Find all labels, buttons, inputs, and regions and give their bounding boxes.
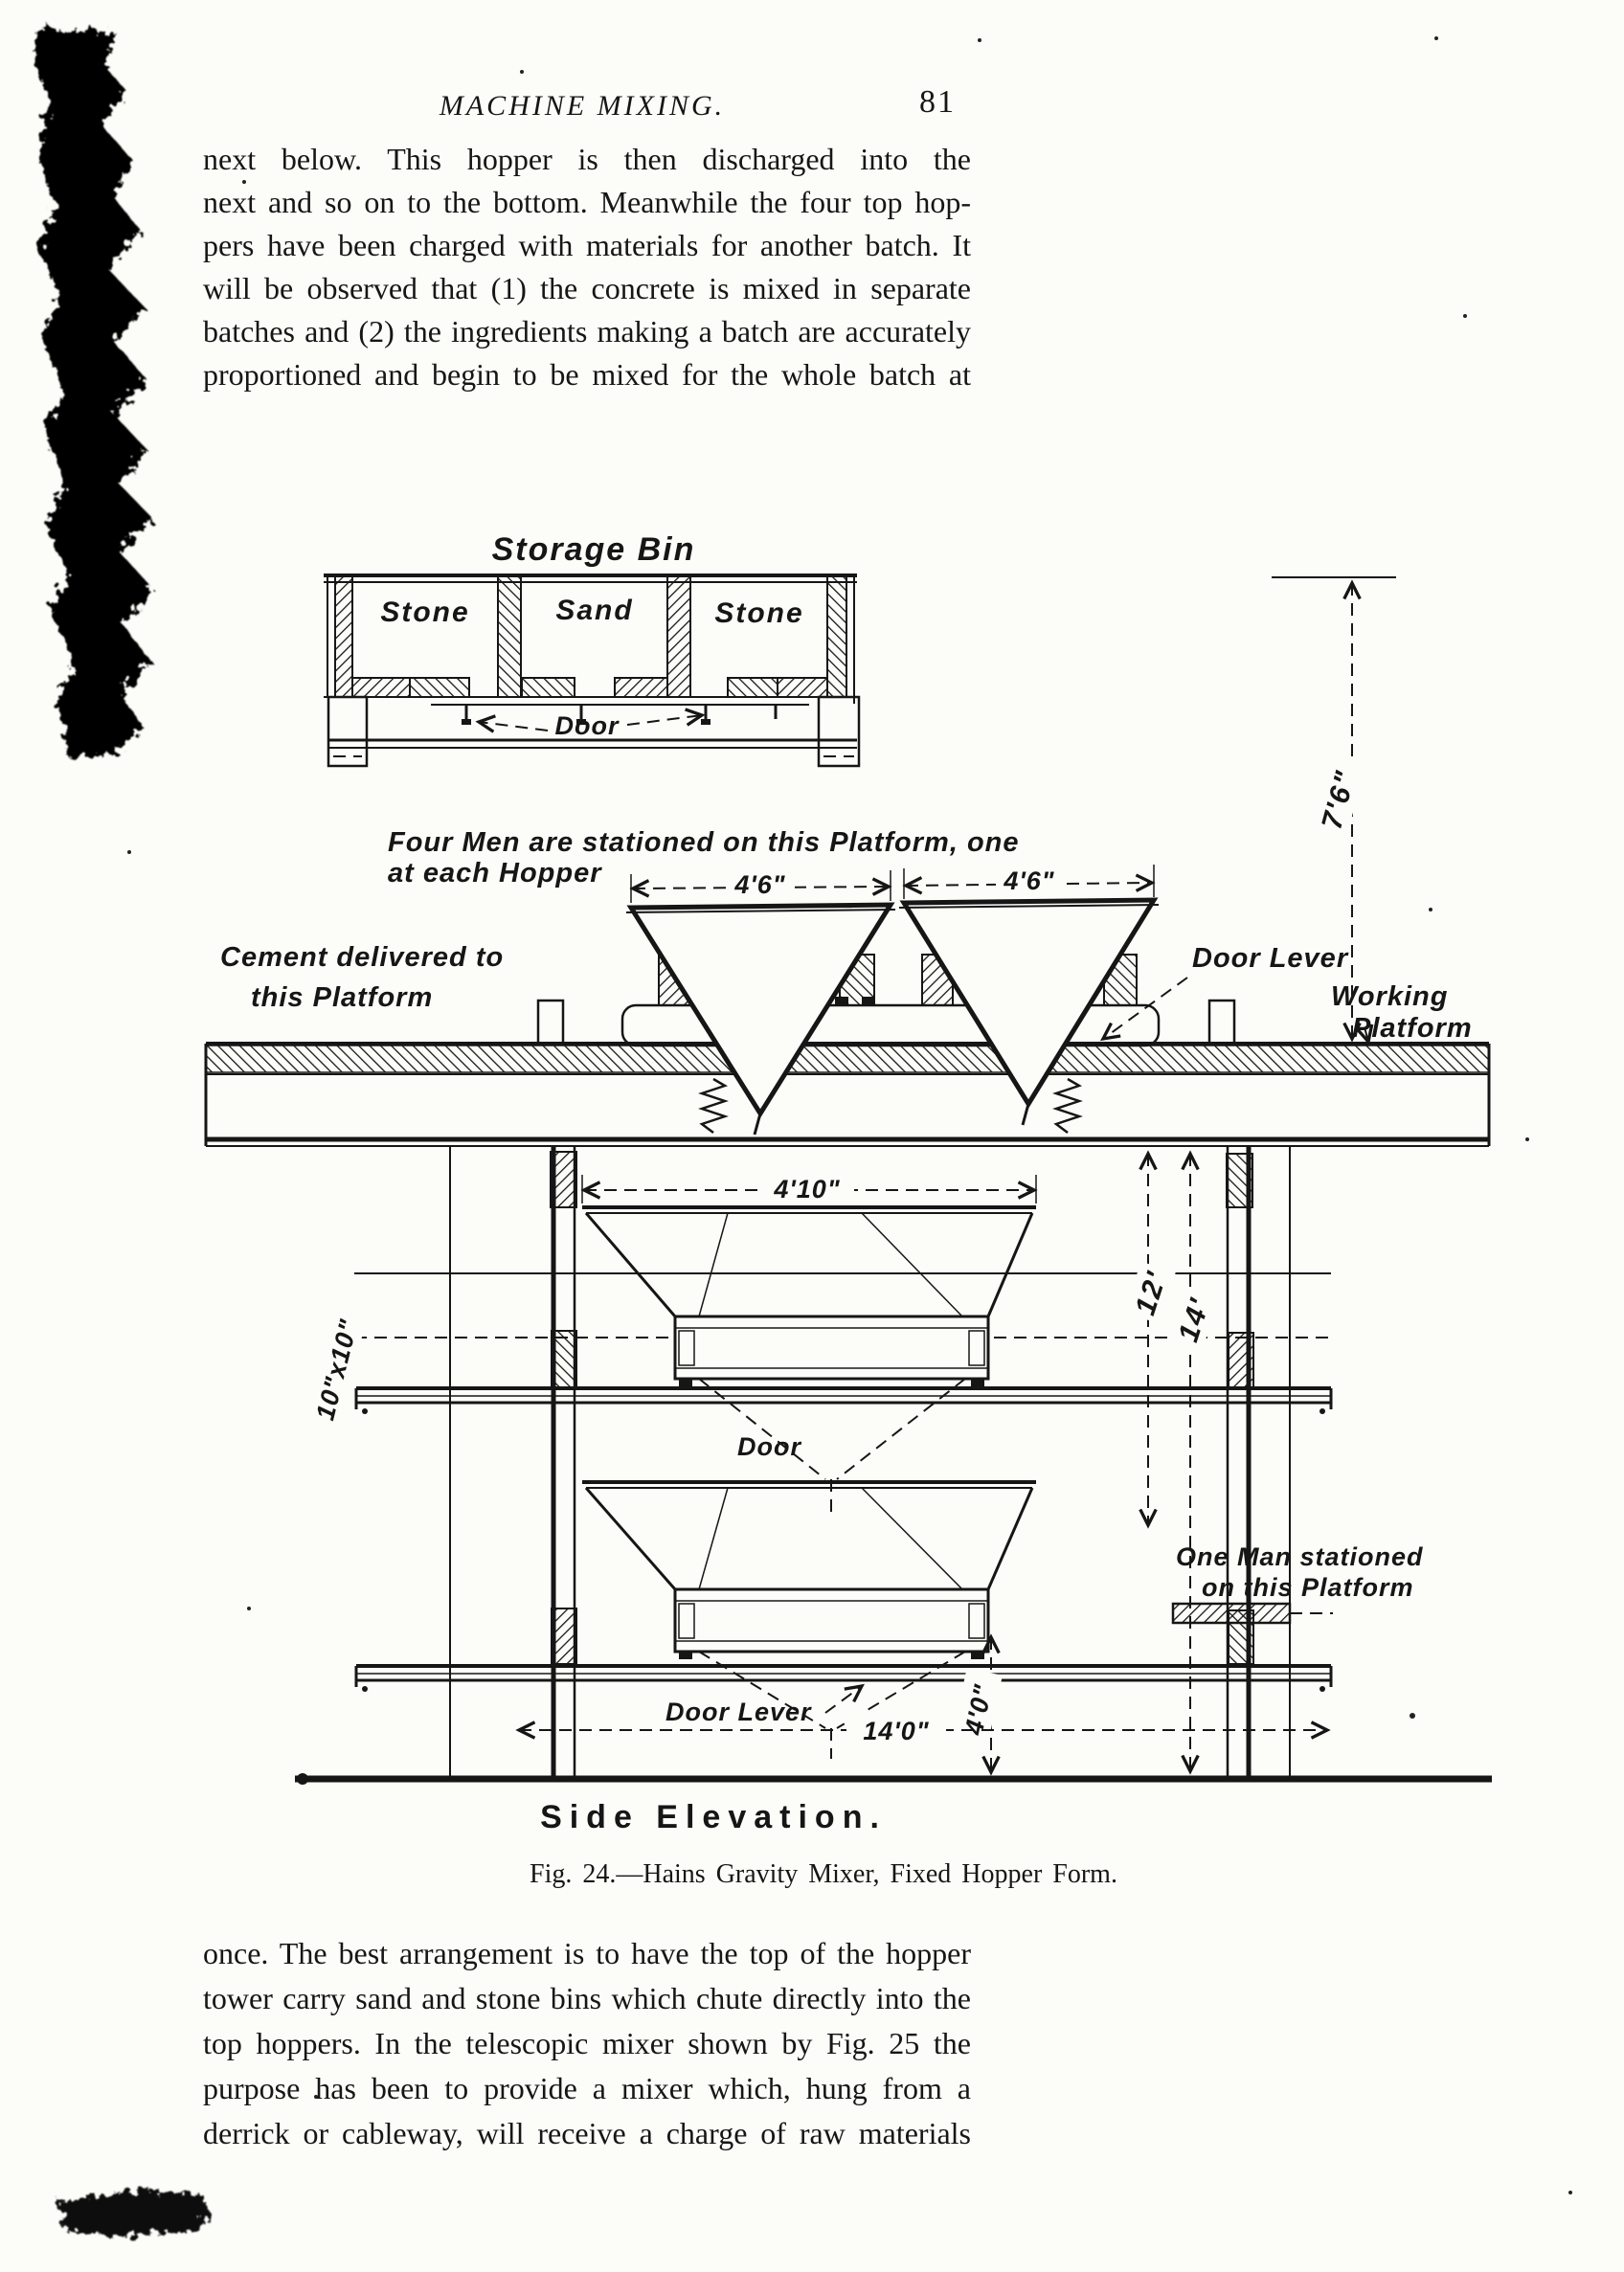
storage-bin-title: Storage Bin	[492, 531, 696, 568]
cement-label-1: Cement delivered to	[220, 942, 504, 973]
dim-10x10: 10"x10"	[304, 1311, 367, 1428]
paragraph-bottom: once. The best arrangement is to have th…	[203, 1936, 971, 2161]
bin-label-stone-right: Stone	[714, 597, 803, 629]
text-line: pers have been charged with materials fo…	[203, 228, 971, 271]
storage-bin-door-label: Door	[555, 711, 620, 740]
cement-label-2: this Platform	[251, 982, 433, 1013]
dim-14-0-label: 14'0"	[863, 1717, 929, 1745]
door-mid-label: Door	[737, 1432, 801, 1461]
text-line: purpose has been to provide a mixer whic…	[203, 2071, 971, 2116]
figure-caption: Fig. 24.—Hains Gravity Mixer, Fixed Hopp…	[287, 1859, 1360, 1890]
bin-label-sand: Sand	[555, 595, 633, 626]
dim-7-6-label: 7'6"	[1316, 767, 1362, 833]
text-line: batches and (2) the ingredients making a…	[203, 314, 971, 357]
dim-12: 12'	[1124, 1261, 1175, 1323]
dim-4-6-left-label: 4'6"	[733, 870, 785, 899]
door-lever-upper-label: Door Lever	[1192, 943, 1349, 974]
text-line: top hoppers. In the telescopic mixer sho…	[203, 2026, 971, 2071]
running-title: MACHINE MIXING.	[343, 90, 822, 123]
text-line: tower carry sand and stone bins which ch…	[203, 1981, 971, 2026]
dim-4-10-label: 4'10"	[773, 1175, 840, 1203]
bin-label-stone-left: Stone	[380, 596, 469, 628]
dim-12-label: 12'	[1130, 1267, 1174, 1318]
dim-7-6: 7'6"	[1310, 757, 1365, 841]
door-lever-lower-label: Door Lever	[665, 1698, 812, 1726]
one-man-label-2: on this Platform	[1202, 1573, 1414, 1602]
working-platform-label-1: Working	[1331, 981, 1448, 1012]
one-man-label-1: One Man stationed	[1176, 1542, 1424, 1571]
working-platform-label-2: Platform	[1352, 1013, 1473, 1044]
text-line: derrick or cableway, will receive a char…	[203, 2116, 971, 2161]
four-men-label-2: at each Hopper	[388, 858, 602, 889]
text-line: next below. This hopper is then discharg…	[203, 142, 971, 185]
binding-shadow	[34, 29, 211, 2237]
paragraph-top: next below. This hopper is then discharg…	[203, 142, 971, 400]
text-line: once. The best arrangement is to have th…	[203, 1936, 971, 1981]
dim-14-label: 14'	[1173, 1293, 1217, 1345]
door-hangers	[466, 705, 776, 721]
side-elevation-label: Side Elevation.	[540, 1799, 887, 1835]
text-line: proportioned and begin to be mixed for t…	[203, 357, 971, 400]
text-line: next and so on to the bottom. Meanwhile …	[203, 185, 971, 228]
text-line: will be observed that (1) the concrete i…	[203, 271, 971, 314]
dim-14: 14'	[1167, 1287, 1220, 1353]
four-men-label-1: Four Men are stationed on this Platform,…	[388, 827, 1020, 858]
book-page: MACHINE MIXING. 81 next below. This hopp…	[0, 0, 1624, 2272]
figure-24-drawing: Storage Bin Stone Sand Stone Door	[192, 522, 1503, 1910]
dim-4-6-right-label: 4'6"	[1003, 866, 1054, 895]
page-number: 81	[919, 84, 956, 121]
